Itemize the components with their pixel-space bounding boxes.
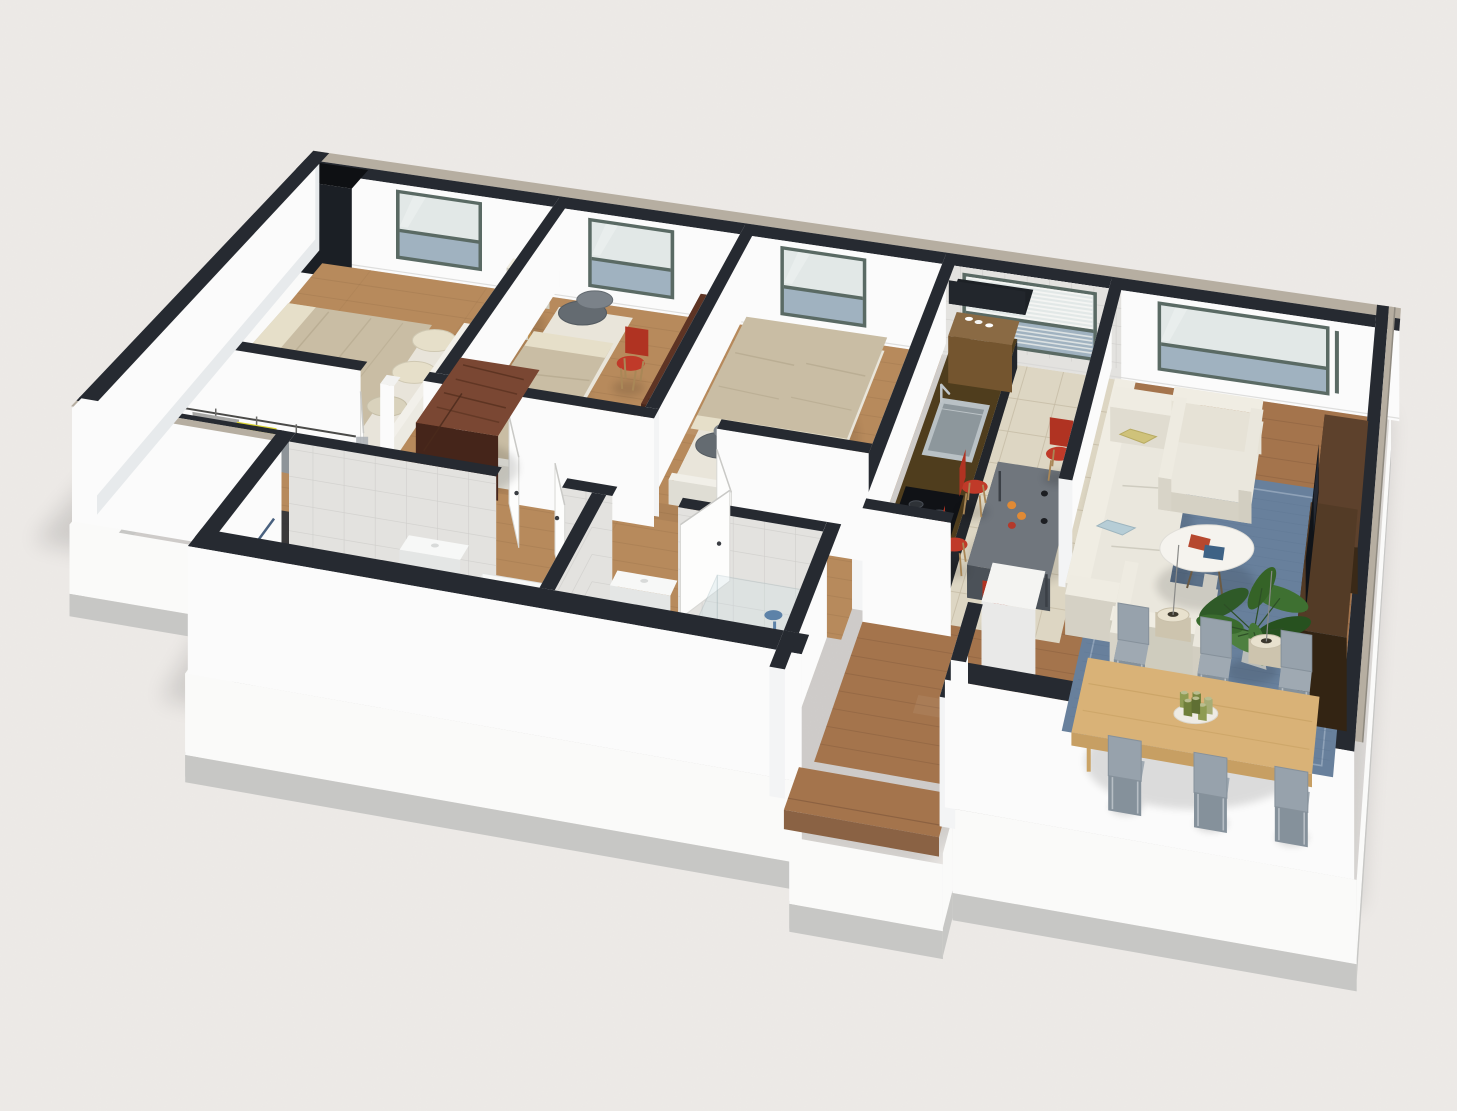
wall-shelf-front bbox=[948, 336, 1012, 393]
candle-top bbox=[1192, 696, 1199, 700]
wall-face bbox=[863, 508, 951, 636]
window-bedroom-3 bbox=[780, 246, 866, 328]
armchair-back-arm-front bbox=[1158, 477, 1171, 511]
chair-f1-backrest bbox=[1108, 736, 1141, 782]
red-apple bbox=[1008, 522, 1016, 529]
door-bathroom-1-handle bbox=[555, 516, 559, 520]
candle-top bbox=[1193, 691, 1200, 695]
cup bbox=[965, 317, 973, 321]
wall-kitchen-front bbox=[863, 498, 955, 636]
line bbox=[624, 358, 625, 378]
ellipse bbox=[612, 380, 644, 396]
armchair-back-arm-front bbox=[1239, 490, 1252, 524]
orange bbox=[1017, 512, 1026, 520]
armchair-back bbox=[1158, 387, 1263, 524]
isometric-scene bbox=[0, 0, 1457, 1111]
flush-button bbox=[431, 543, 439, 547]
candle-top bbox=[1181, 691, 1188, 695]
wall-end bbox=[769, 667, 785, 799]
candle-top bbox=[1184, 699, 1191, 703]
cup bbox=[985, 323, 993, 327]
chair-f2-seat-front bbox=[1194, 792, 1227, 833]
flush-button bbox=[640, 579, 648, 583]
line bbox=[621, 368, 622, 389]
orange bbox=[1007, 501, 1016, 509]
black-cup bbox=[1041, 518, 1048, 524]
black-cup bbox=[1041, 491, 1048, 497]
dining-chair-f2 bbox=[1194, 752, 1230, 833]
candle bbox=[1184, 700, 1193, 717]
red-chair-back bbox=[625, 326, 648, 356]
window-bedroom-2 bbox=[588, 218, 674, 300]
door-bedroom-2-handle bbox=[514, 491, 518, 495]
chair-b3-backrest bbox=[1281, 630, 1312, 672]
magazine-blue bbox=[1203, 545, 1225, 561]
window-bedroom-1 bbox=[396, 190, 482, 272]
door-bathroom-2-handle bbox=[717, 541, 721, 545]
chair-b2-backrest bbox=[1201, 617, 1232, 659]
apartment-floorplan-render bbox=[0, 0, 1457, 1111]
window-mullion bbox=[1335, 331, 1339, 394]
dining-chair-f1 bbox=[1108, 736, 1144, 817]
chair-f1-seat-front bbox=[1108, 776, 1141, 817]
cup bbox=[975, 320, 983, 324]
pillow-gray-2 bbox=[577, 291, 613, 309]
chair-f3-seat-front bbox=[1275, 807, 1308, 848]
shower-head bbox=[764, 610, 782, 620]
chair-b1-backrest bbox=[1118, 603, 1149, 645]
candle-top bbox=[1205, 697, 1212, 701]
chair-f2-backrest bbox=[1194, 752, 1227, 798]
dining-chair-f3 bbox=[1275, 766, 1310, 847]
chair-f3-backrest bbox=[1275, 766, 1308, 812]
